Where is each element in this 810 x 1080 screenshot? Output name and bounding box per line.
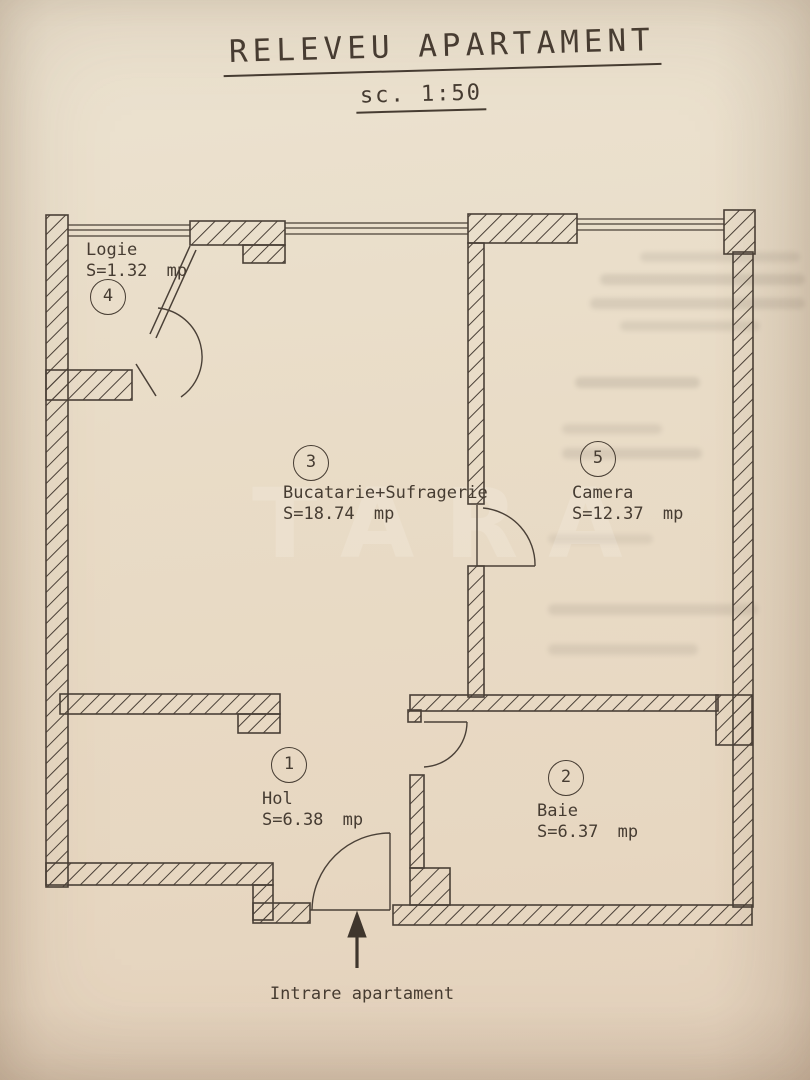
entrance-arrow-head — [348, 912, 366, 937]
wall-room5-baie — [410, 695, 718, 711]
room-number-camera: 5 — [580, 441, 616, 477]
window-logie — [68, 225, 190, 236]
wall-baie-pier — [716, 695, 752, 745]
wall-room3-room5-lower — [468, 566, 484, 697]
room-area-baie: S=6.37 mp — [537, 822, 638, 843]
wall-bottom-left — [46, 863, 273, 885]
room-name-bucatarie: Bucatarie+Sufragerie — [283, 483, 488, 504]
room-number-bucatarie: 3 — [293, 445, 329, 481]
wall-top-pier-b — [468, 214, 577, 243]
room-name-baie: Baie — [537, 801, 638, 822]
room-label-baie: Baie S=6.37 mp — [537, 801, 638, 843]
room-number-baie: 2 — [548, 760, 584, 796]
room-label-bucatarie: Bucatarie+Sufragerie S=18.74 mp — [283, 483, 488, 525]
wall-bottom-entry-left — [253, 903, 310, 923]
room-label-camera: Camera S=12.37 mp — [572, 483, 683, 525]
room-name-camera: Camera — [572, 483, 683, 504]
entrance-label: Intrare apartament — [262, 984, 462, 1004]
wall-room3-hol — [60, 694, 280, 714]
windows — [68, 219, 724, 236]
entrance-arrow-icon — [348, 912, 366, 968]
room-label-hol: Hol S=6.38 mp — [262, 789, 363, 831]
room-area-hol: S=6.38 mp — [262, 810, 363, 831]
wall-room3-hol-step — [238, 714, 280, 733]
scanned-floor-plan-page: TARA RELEVEU APARTAMENT sc. 1:50 — [0, 0, 810, 1080]
door-entrance — [310, 833, 390, 910]
interior-walls — [46, 243, 752, 905]
room-area-logie: S=1.32 mp — [86, 261, 187, 282]
room-area-camera: S=12.37 mp — [572, 504, 683, 525]
wall-top-pier-a-step — [243, 245, 285, 263]
room-name-logie: Logie — [86, 240, 187, 261]
wall-logie-bottom — [46, 370, 132, 400]
door-baie — [424, 722, 467, 767]
wall-corner-top-right — [724, 210, 755, 254]
wall-left — [46, 215, 68, 887]
floor-plan-drawing — [0, 0, 810, 1080]
wall-bottom — [393, 905, 752, 925]
room-area-bucatarie: S=18.74 mp — [283, 504, 488, 525]
door-logie-arc — [158, 308, 202, 397]
wall-hol-baie-block — [410, 868, 450, 905]
wall-room3-room5-upper — [468, 243, 484, 504]
room-number-hol: 1 — [271, 747, 307, 783]
wall-right — [733, 252, 753, 907]
exterior-walls — [46, 210, 755, 925]
room-number-logie: 4 — [90, 279, 126, 315]
wall-top-pier-a — [190, 221, 285, 245]
window-camera — [577, 219, 724, 230]
room-label-logie: Logie S=1.32 mp — [86, 240, 187, 282]
wall-baie-door-stub — [408, 710, 421, 722]
wall-hol-baie — [410, 775, 424, 868]
window-bucatarie — [285, 223, 468, 234]
room-name-hol: Hol — [262, 789, 363, 810]
